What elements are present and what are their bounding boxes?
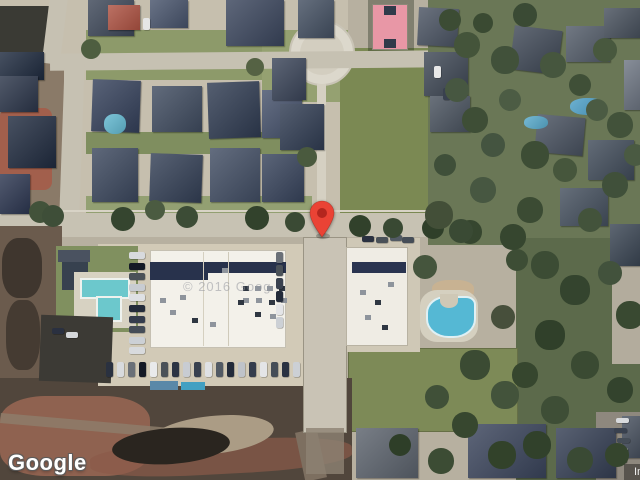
rooftop-unit: [269, 300, 275, 305]
drive-center: [303, 237, 347, 433]
road-top-diagonal: [42, 0, 68, 65]
road-top: [50, 50, 442, 70]
right-strip-light: [612, 246, 640, 364]
rooftop-unit: [279, 286, 285, 291]
house-roof: [88, 0, 134, 36]
car: [129, 347, 145, 354]
mound-tan: [148, 410, 275, 461]
rooftop-unit: [170, 310, 176, 315]
backyard-pool: [570, 98, 606, 115]
rooftop-unit: [360, 290, 366, 295]
rooftop-unit: [267, 286, 273, 291]
road-left-vertical: [59, 58, 85, 221]
house-roof: [604, 8, 640, 38]
rooftop-unit: [255, 286, 261, 291]
rooftop-unit: [210, 322, 216, 327]
lawn-band-mid: [86, 132, 308, 154]
car: [139, 362, 146, 377]
car: [216, 362, 223, 377]
lawn-band-north: [86, 30, 308, 80]
pin-inner-dot: [317, 208, 327, 218]
building-a-navy-left: [150, 262, 208, 280]
car: [376, 237, 388, 243]
car: [129, 263, 145, 270]
rooftop-unit: [222, 268, 228, 273]
pool-deck-west: [74, 272, 136, 328]
house-roof: [0, 52, 44, 80]
house-roof: [356, 428, 418, 478]
rooftop-unit: [365, 315, 371, 320]
car: [276, 304, 283, 315]
park-field: [340, 48, 428, 216]
house-roof: [272, 58, 306, 100]
dirt-west-strip: [0, 226, 62, 380]
car: [183, 362, 190, 377]
car: [614, 458, 627, 463]
dirt-blob-a: [2, 238, 42, 298]
car: [390, 235, 402, 241]
rooftop-unit: [270, 314, 276, 319]
building-a: [150, 250, 286, 348]
rooftop-unit: [388, 282, 394, 287]
construction-dirt-west: [0, 58, 64, 220]
house-roof: [207, 81, 261, 139]
house-roof: [622, 416, 640, 458]
rooftop-unit: [256, 298, 262, 303]
car: [238, 362, 245, 377]
house-roof: [0, 76, 38, 112]
residential-ground: [0, 0, 348, 216]
car: [129, 316, 145, 323]
rooftop-unit: [281, 298, 287, 303]
pool-west-v: [96, 296, 122, 322]
shed-west-a: [58, 250, 90, 262]
tree-canopy-layer: [0, 0, 10, 10]
car: [260, 362, 267, 377]
culdesac-inner: [300, 31, 344, 75]
house-roof: [468, 424, 546, 478]
house-roof: [588, 140, 634, 180]
rooftop-unit: [255, 312, 261, 317]
car: [52, 328, 64, 334]
car: [129, 326, 145, 333]
yard-near-circle: [262, 30, 348, 102]
house-roof: [262, 90, 302, 138]
trees-base-southeast: [516, 238, 640, 480]
house-roof: [152, 86, 202, 132]
house-roof: [8, 116, 56, 168]
rooftop-unit: [192, 318, 198, 323]
house-roof: [509, 25, 562, 75]
house-roof: [566, 26, 610, 62]
house-roof: [210, 148, 260, 202]
car: [617, 438, 630, 443]
house-roof: [91, 79, 141, 133]
car: [282, 362, 289, 377]
road-main-horizontal: [0, 213, 502, 237]
rooftop-unit: [160, 298, 166, 303]
car: [276, 317, 283, 328]
car: [150, 362, 157, 377]
pool-lawn-west: [56, 246, 138, 332]
building-a-seam-2: [228, 252, 229, 346]
house-roof: [424, 52, 468, 96]
court-fence: [368, 0, 414, 55]
google-logo[interactable]: Google: [8, 450, 87, 476]
car: [276, 265, 283, 276]
red-dirt-west: [0, 108, 52, 190]
car: [443, 88, 450, 100]
mound-dark: [111, 424, 231, 468]
car: [129, 305, 145, 312]
trailer-b: [181, 382, 205, 390]
house-roof: [280, 104, 324, 150]
right-lot-southeast: [596, 412, 640, 480]
ground-base: [0, 0, 640, 480]
house-roof: [0, 174, 30, 214]
car: [143, 18, 150, 30]
trees-base-northeast: [428, 0, 640, 245]
sand-patch-east: [432, 280, 474, 300]
rooftop-unit: [180, 295, 186, 300]
car: [129, 273, 145, 280]
pool-east-notch: [440, 294, 458, 308]
car: [271, 362, 278, 377]
car: [129, 284, 145, 291]
pin-body: [310, 201, 334, 237]
car: [276, 278, 283, 289]
building-a-seam-1: [203, 252, 204, 346]
dark-lot-topleft: [0, 6, 52, 56]
location-pin-icon[interactable]: [309, 200, 335, 238]
backyard-pool: [524, 116, 548, 129]
car: [434, 66, 441, 78]
pool-east: [426, 296, 476, 338]
court-goal-south: [384, 39, 396, 48]
car: [616, 418, 629, 423]
car: [276, 252, 283, 263]
rooftop-unit: [238, 300, 244, 305]
house-roof: [226, 0, 284, 46]
car: [249, 362, 256, 377]
car: [106, 362, 113, 377]
track-light: [0, 413, 252, 445]
house-roof: [149, 153, 203, 203]
lawn-band-south: [86, 196, 312, 214]
house-roof: [556, 428, 616, 478]
house-roof: [560, 188, 608, 226]
parking-apron-main: [98, 244, 340, 386]
basketball-court: [372, 4, 408, 50]
red-dirt-south-b: [89, 433, 352, 480]
trailer-a: [150, 381, 178, 390]
attribution-text: Imagery ©2026 Airbus, Maxar Technologies…: [634, 466, 640, 478]
dark-parking-west: [39, 315, 113, 383]
car: [614, 428, 627, 433]
road-right-diagonal-b: [489, 107, 523, 248]
car: [194, 362, 201, 377]
car: [117, 362, 124, 377]
building-a-navy-top: [208, 262, 286, 273]
drive-fade: [306, 428, 344, 474]
car: [129, 337, 145, 344]
house-roof: [610, 224, 640, 266]
rooftop-unit: [243, 286, 249, 291]
track-curve: [295, 428, 327, 480]
house-roof: [150, 0, 188, 28]
culdesac-circle: [289, 20, 355, 86]
backyard-pool: [104, 114, 126, 134]
sidewalk-main-north: [0, 210, 500, 212]
car: [362, 236, 374, 242]
house-roof: [417, 7, 459, 47]
house-roof: [430, 96, 470, 132]
attribution-bar: Imagery ©2026 Airbus, Maxar Technologies…: [624, 464, 640, 480]
imagery-roof-watermark: © 2016 Goog: [183, 279, 272, 294]
house-roof: [298, 0, 334, 38]
car: [205, 362, 212, 377]
court-goal-north: [384, 6, 396, 15]
building-b: [346, 247, 408, 346]
rooftop-unit: [382, 325, 388, 330]
car: [293, 362, 300, 377]
dirt-blob-b: [6, 300, 40, 370]
car: [402, 237, 414, 243]
parking-apron-east: [340, 238, 420, 352]
rooftop-unit: [243, 298, 249, 303]
clay-court: [108, 5, 140, 30]
car: [129, 252, 145, 259]
lawn-bottom-center: [348, 348, 518, 432]
house-roof: [262, 154, 304, 202]
car: [227, 362, 234, 377]
house-roof: [534, 114, 585, 156]
car: [128, 362, 135, 377]
car: [129, 294, 145, 301]
pool-west-h: [80, 278, 130, 299]
building-b-navy-band: [352, 262, 406, 273]
road-right-diagonal-a: [469, 0, 517, 133]
car: [615, 448, 628, 453]
car: [161, 362, 168, 377]
satellite-map-canvas[interactable]: © 2016 Goog Google Imagery ©2026 Airbus,…: [0, 0, 640, 480]
house-roof: [92, 148, 138, 202]
car: [276, 291, 283, 302]
house-roof: [624, 60, 640, 110]
pool-deck-east: [420, 290, 478, 342]
car: [66, 332, 78, 338]
shed-west-b: [62, 262, 88, 290]
footpath-center: [317, 84, 326, 214]
rooftop-unit: [375, 300, 381, 305]
car: [172, 362, 179, 377]
